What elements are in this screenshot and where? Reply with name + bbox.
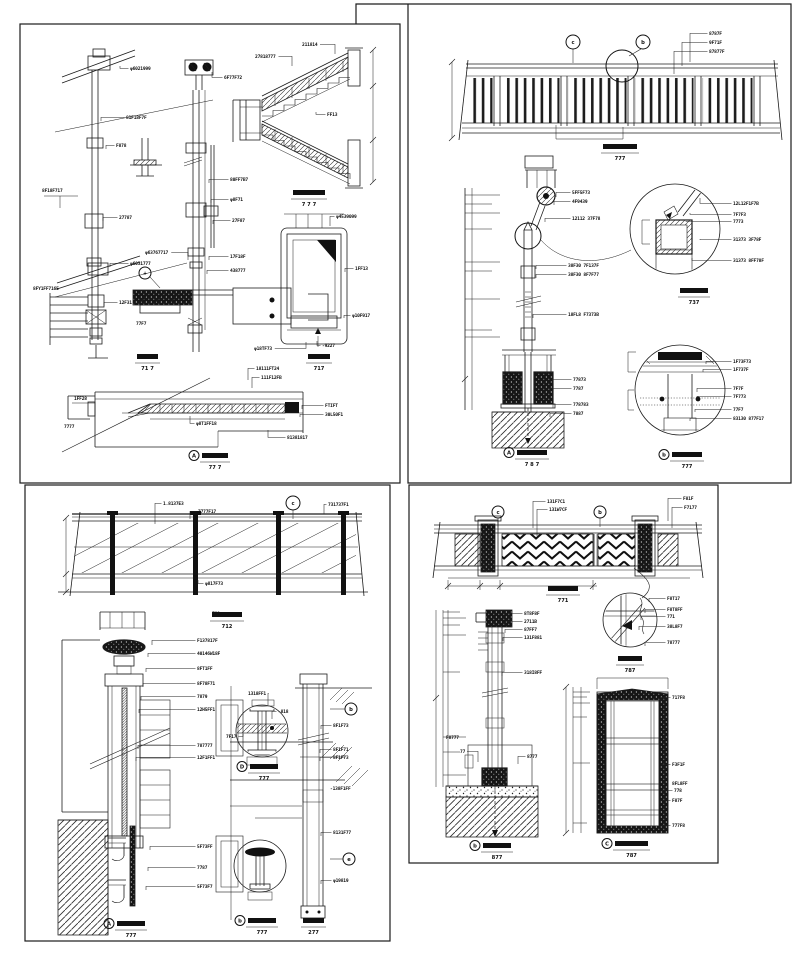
annotation-label: 87877F: [709, 49, 725, 55]
leader-line: [302, 405, 324, 409]
leader-line: [272, 711, 277, 719]
detail-title-bar: [137, 354, 158, 359]
hatched-bracket-detail: [133, 290, 192, 313]
annotation-label: 8F78F71: [197, 681, 215, 687]
annotation-label: 80FF7B7: [230, 177, 248, 183]
annotation-label: FF13: [327, 112, 338, 118]
detail-title-bar: [615, 841, 648, 846]
cad-drawing-sheet: φ602199981F18F7FF8788F18F71727787φ603177…: [0, 0, 800, 958]
annotation-label: 7777: [64, 424, 75, 430]
annotation-label: 7F7F: [733, 386, 744, 392]
callout-letter: +: [143, 271, 147, 277]
detail-scale-text: 71 7: [141, 366, 154, 372]
leader-line: [138, 745, 196, 749]
callout-letter: b: [598, 510, 602, 516]
tread-section-detail: [62, 378, 303, 452]
annotation-label: 30L50F1: [325, 412, 343, 418]
detail-title-bar: [548, 586, 578, 591]
annotation-label: 1FF28: [74, 396, 87, 402]
annotation-label: 27F87: [232, 218, 245, 224]
flange-plate-detail: [130, 138, 162, 176]
leader-line: [695, 409, 732, 412]
leader-line: [146, 668, 196, 672]
annotation-label: 7773: [733, 219, 744, 225]
leader-line: [345, 268, 354, 272]
leader-line: [152, 640, 196, 645]
annotation-label: 38F30 7F137F: [568, 263, 599, 269]
leader-line: [703, 369, 732, 372]
leader-line: [212, 72, 223, 77]
annotation-label: φ19819: [333, 878, 349, 884]
detail-scale-text: 712: [222, 624, 233, 630]
detail-title-bar: [483, 843, 511, 848]
annotation-label: 7777F17: [198, 509, 216, 515]
annotation-label: 31373 8FF78F: [733, 258, 764, 264]
leader-line: [674, 51, 708, 74]
leader-line: [518, 756, 526, 764]
glass-railing-posts: [107, 511, 349, 595]
leader-line: [552, 379, 572, 383]
detail-title-bar: [250, 764, 278, 769]
leader-line: [209, 179, 229, 183]
annotation-label: 77873: [573, 377, 586, 383]
annotation-label: F8777: [446, 735, 459, 741]
annotation-label: 787777: [197, 743, 213, 749]
detail-scale-text: 777: [259, 776, 270, 782]
panel-1-stair-railing-details: [20, 24, 400, 483]
annotation-label: 438777: [230, 268, 246, 274]
annotation-label: 211814: [302, 42, 318, 48]
leader-line: [103, 217, 118, 221]
annotation-label: -9227: [322, 343, 335, 349]
callout-circle: [515, 223, 541, 249]
post-section-footing: [433, 610, 538, 837]
annotation-label: 17F18F: [230, 254, 246, 260]
leader-line: [503, 637, 523, 641]
annotation-label: 777F8: [672, 823, 685, 829]
annotation-label: F137817F: [197, 638, 218, 644]
annotation-label: 8F1F73: [333, 755, 349, 761]
annotation-label: 12H5FF1: [197, 707, 215, 713]
glass-panel-hatch: [40, 522, 420, 574]
leader-line: [148, 653, 196, 657]
detail-letter: C: [605, 842, 609, 848]
annotation-label: 38L8F7: [667, 624, 683, 630]
annotation-label: φ63767717: [145, 250, 169, 256]
annotation-label: F87F: [672, 798, 683, 804]
leader-line: [300, 414, 324, 417]
annotation-label: 5F73F7: [197, 884, 213, 890]
annotation-label: FTIFT: [325, 403, 338, 409]
annotation-label: 5F73FF: [197, 844, 213, 850]
detail-scale-text: 277: [308, 930, 319, 936]
railing-elevation: [449, 59, 782, 168]
annotation-label: 778783: [573, 402, 589, 408]
leader-line: [209, 256, 229, 260]
leader-line: [324, 504, 327, 514]
annotation-label: 77: [460, 749, 466, 755]
annotation-label: 8FY1FF716E: [33, 286, 59, 292]
annotation-label: -818: [278, 709, 289, 715]
annotation-label: 318I8FF: [524, 670, 542, 676]
detail-letter: A: [507, 451, 511, 457]
leader-line: [120, 66, 129, 68]
annotation-label: 4F9439: [572, 199, 588, 205]
leader-line: [536, 274, 567, 278]
detail-scale-text: 7 7 7: [302, 202, 317, 208]
leader-line: [700, 198, 732, 203]
leader-line: [536, 265, 567, 269]
panel-border: [20, 24, 400, 483]
leader-line: [700, 239, 732, 240]
detail-scale-text: 787: [625, 668, 636, 674]
detail-title-bar: [517, 450, 547, 455]
detail-title-bar: [618, 656, 642, 661]
leader-line: [556, 192, 571, 197]
lattice-railing-elevation: [433, 516, 703, 598]
annotation-label: 111F12FB: [261, 375, 282, 381]
detail-title-bar: [672, 452, 702, 457]
leader-line: [467, 751, 478, 762]
annotation-label: 12F31: [119, 300, 132, 306]
annotation-label: F878: [116, 143, 127, 149]
callout-letter: c: [496, 510, 499, 516]
annotation-label: 8F18F717: [42, 188, 63, 194]
leader-line: [139, 709, 196, 713]
annotation-label: 78777: [667, 640, 680, 646]
annotation-label: 77F7: [733, 407, 744, 413]
leader-line: [545, 218, 571, 222]
post-cap-joint-detail: [630, 184, 720, 276]
annotation-label: 38F30 8F7F77: [568, 272, 599, 278]
detail-scale-text: 77 7: [209, 465, 222, 471]
leader-line: [146, 886, 196, 890]
detail-scale-text: 877: [492, 855, 503, 861]
annotation-label: 2711B: [524, 619, 537, 625]
post-tall-section: [298, 674, 329, 918]
annotation-label: 8FL8FF: [672, 781, 688, 787]
detail-title-bar: [293, 190, 325, 195]
annotation-label: 8FT1FF: [197, 666, 213, 672]
annotation-label: 81F18F7F: [126, 115, 147, 121]
leader-line: [330, 216, 335, 226]
leader-line: [148, 867, 196, 871]
leader-line: [533, 501, 546, 528]
detail-leader-curve: [541, 240, 631, 261]
detail-scale-text: 777: [126, 933, 137, 939]
leader-line: [321, 832, 332, 836]
leader-line: [143, 683, 196, 687]
detail-letter: A: [192, 454, 196, 460]
leader-line: [505, 629, 523, 633]
annotation-label: φ817F73: [205, 581, 223, 587]
annotation-label: 31373 3F78F: [733, 237, 762, 243]
annotation-label: 7F773: [733, 394, 746, 400]
annotation-label: 8T8F8F: [524, 611, 540, 617]
callout-letter: c: [571, 40, 574, 46]
annotation-label: 40146W18F: [197, 651, 221, 657]
detail-title-bar: [303, 918, 324, 923]
glass-railing-elevation: [40, 511, 420, 596]
detail-scale-text: 737: [689, 300, 700, 306]
annotation-label: φ6021999: [130, 66, 151, 72]
annotation-label: F81F: [683, 496, 694, 502]
leader-line: [320, 757, 332, 761]
detail-letter: b: [662, 453, 666, 459]
annotation-label: 18FL8 F7373B: [568, 312, 599, 318]
leader-line: [316, 112, 326, 114]
detail-title-bar: [212, 612, 242, 617]
leader-line: [533, 314, 567, 318]
stair-elevation: [233, 47, 376, 188]
leader-line: [248, 368, 255, 380]
annotation-label: 1FF13: [355, 266, 368, 272]
panel-3-glass-railing-details: [25, 485, 420, 941]
leader-line: [682, 42, 708, 66]
detail-letter: A: [107, 922, 111, 928]
annotation-label: 731737F1: [328, 502, 349, 508]
detail-title-bar: [603, 144, 637, 149]
detail-scale-text: 771: [558, 598, 569, 604]
annotation-label: 131W7CF: [549, 507, 567, 513]
leader-line: [317, 341, 321, 345]
annotation-label: φ18TF73: [254, 346, 272, 352]
leader-line: [104, 302, 118, 306]
annotation-label: F7177: [684, 505, 697, 511]
leader-line: [641, 616, 666, 620]
leader-line: [502, 672, 523, 676]
leader-line: [150, 846, 196, 850]
annotation-label: φ4539099: [336, 214, 357, 220]
leader-line: [321, 880, 332, 884]
annotation-label: 8131F77: [333, 830, 351, 836]
detail-title-bar: [308, 354, 330, 359]
sleeve-section-detail: [281, 214, 347, 347]
annotation-label: 27787: [119, 215, 132, 221]
leader-line: [275, 342, 306, 348]
annotation-label: 778: [674, 788, 682, 794]
annotation-label: 131F881: [524, 635, 542, 641]
leader-line: [690, 213, 732, 214]
leader-line: [268, 693, 269, 705]
annotation-label: 1F73F73: [733, 359, 751, 365]
leader-line: [198, 580, 204, 583]
annotation-label: 7F17: [226, 734, 237, 740]
leader-line: [690, 33, 708, 62]
leader-line: [279, 56, 293, 66]
annotation-label: F8T8FF: [667, 607, 683, 613]
detail-title-bar: [680, 288, 708, 293]
annotation-label: 131F7C1: [547, 499, 565, 505]
annotation-label: 83130 877F17: [733, 416, 764, 422]
annotation-label: 12L12F1F7B: [733, 201, 759, 207]
leader-line: [649, 598, 666, 602]
detail-title-bar: [248, 918, 276, 923]
post-vertical-section: [462, 170, 631, 448]
leader-line: [668, 498, 682, 521]
annotation-label: φ10F917: [352, 313, 370, 319]
annotation-label: 12F1FF1: [197, 755, 215, 761]
annotation-label: 771: [667, 614, 675, 620]
annotation-label: φ8F71: [230, 197, 243, 203]
callout-letter: c: [291, 501, 294, 507]
annotation-label: 5FF5F73: [572, 190, 590, 196]
callout-letter: e: [347, 857, 351, 863]
callout-stem: [150, 277, 160, 288]
leader-line: [321, 725, 332, 729]
annotation-label: 717F8: [672, 695, 685, 701]
annotation-label: 8777: [527, 754, 538, 760]
annotation-label: 12112 37F78: [572, 216, 601, 222]
annotation-label: 87FF7: [524, 627, 537, 633]
annotation-label: 7887: [573, 411, 584, 417]
detail-letter: b: [238, 919, 242, 925]
annotation-label: φ6031777: [130, 261, 151, 267]
callout-circle: [606, 50, 638, 82]
annotation-label: 1.8137E3: [163, 501, 184, 507]
annotation-label: 77F7: [136, 321, 147, 327]
annotation-label: 8F1F71: [333, 747, 349, 753]
leader-line: [239, 734, 244, 736]
leader-line: [697, 388, 732, 392]
detail-scale-text: 7 8 7: [525, 462, 540, 468]
detail-scale-text: 777: [615, 156, 626, 162]
callout-letter: b: [641, 40, 645, 46]
leader-line: [207, 270, 229, 274]
annotation-label: 7879: [197, 694, 208, 700]
annotation-label: 81381817: [287, 435, 308, 441]
callout-letter: b: [349, 707, 353, 713]
detail-title-bar: [117, 921, 145, 926]
annotation-label: φ8T1FF18: [196, 421, 217, 427]
leader-line: [537, 509, 548, 536]
leader-line: [553, 404, 572, 408]
leader-line: [554, 201, 571, 205]
leader-line: [141, 696, 196, 700]
left-post-section: [44, 49, 213, 403]
leader-line: [645, 642, 666, 646]
annotation-label: 6F77F72: [224, 75, 242, 81]
leader-line: [692, 258, 732, 260]
annotation-label: 7787: [573, 386, 584, 392]
detail-scale-text: 777: [682, 464, 693, 470]
annotation-label: 27818777: [255, 54, 276, 60]
leader-line: [106, 145, 115, 149]
post-frame-elevation: [563, 678, 668, 836]
annotation-label: 1318FF1: [248, 691, 266, 697]
leader-line: [320, 44, 335, 54]
annotation-label: -138F1FF: [330, 786, 351, 792]
leader-line: [213, 220, 231, 224]
annotation-label: 7787: [197, 865, 208, 871]
annotation-label: 8787F: [709, 31, 722, 37]
leader-line: [190, 416, 195, 423]
detail-title-bar: [202, 453, 228, 458]
rail-stringer-joint-detail: [628, 345, 725, 442]
leader-line: [252, 377, 260, 388]
panel-4-lattice-railing-details: [409, 485, 718, 863]
detail-scale-text: 717: [314, 366, 325, 372]
detail-scale-text: 777: [257, 930, 268, 936]
leader-line: [320, 749, 332, 753]
annotation-label: 8F1F73: [333, 723, 349, 729]
detail-scale-text: 787: [626, 853, 637, 859]
railing-details-drawing: φ602199981F18F7FF8788F18F71727787φ603177…: [0, 0, 800, 958]
annotation-label: F8T17: [667, 596, 680, 602]
annotation-label: 9F71F: [709, 40, 722, 46]
annotation-label: 18111FT24: [256, 366, 280, 372]
annotation-label: 1F737F: [733, 367, 749, 373]
leader-line: [171, 252, 188, 260]
annotation-label: F3F1F: [672, 762, 685, 768]
detail-letter: D: [240, 765, 245, 771]
detail-letter: b: [473, 844, 477, 850]
annotation-label: 7F7F3: [733, 212, 746, 218]
